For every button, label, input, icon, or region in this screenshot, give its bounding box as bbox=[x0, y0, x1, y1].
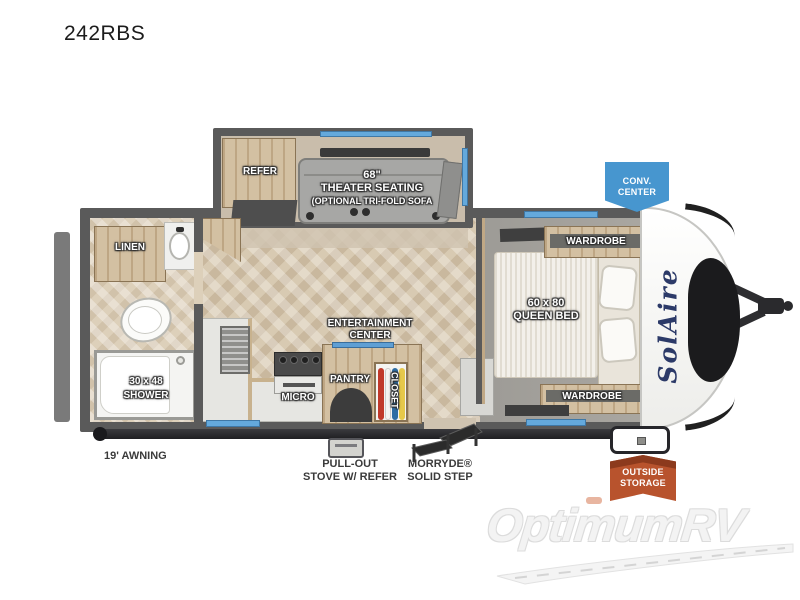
bedroom-bench bbox=[505, 405, 569, 416]
shower-drain-icon bbox=[176, 356, 185, 365]
stove-label-2: STOVE W/ REFER bbox=[300, 471, 400, 484]
stove-cooktop-icon bbox=[274, 352, 322, 376]
watermark-logo: OptimumRV bbox=[484, 498, 746, 552]
cupholder-icon bbox=[350, 208, 358, 216]
theater-shelf bbox=[320, 148, 430, 157]
window-strip bbox=[320, 131, 432, 137]
rear-bumper bbox=[54, 232, 70, 422]
sofa-foot-icon bbox=[306, 212, 314, 220]
shower-size-label: 30 x 48 bbox=[106, 376, 186, 388]
clothes-icon bbox=[399, 368, 405, 420]
outside-storage-badge: OUTSIDE STORAGE bbox=[610, 455, 676, 501]
faucet-icon bbox=[176, 227, 184, 232]
tv-icon bbox=[332, 342, 394, 348]
page-title: 242RBS bbox=[64, 22, 145, 46]
bedroom-wall bbox=[476, 218, 485, 404]
cupholder-icon bbox=[362, 208, 370, 216]
bathroom-wall bbox=[194, 218, 203, 422]
burner-icon bbox=[279, 356, 287, 364]
micro-label: MICRO bbox=[272, 392, 324, 404]
stove-grate bbox=[335, 444, 357, 447]
window-strip bbox=[524, 211, 598, 218]
burner-icon bbox=[312, 356, 320, 364]
step-label-1: MORRYDE® bbox=[392, 458, 488, 471]
entertainment-label-2: CENTER bbox=[310, 330, 430, 342]
toilet-seat-icon bbox=[128, 306, 162, 334]
bathroom-sink-icon bbox=[169, 232, 190, 260]
burner-icon bbox=[301, 356, 309, 364]
window-strip bbox=[526, 419, 586, 426]
front-window bbox=[688, 258, 740, 382]
awning-end-cap bbox=[93, 427, 107, 441]
pullout-stove-icon bbox=[328, 438, 364, 458]
cap-trim bbox=[683, 203, 738, 236]
pillow-icon bbox=[598, 264, 638, 312]
window-strip bbox=[206, 420, 260, 427]
closet-label: CLOSET bbox=[389, 364, 400, 416]
hatch-latch-icon bbox=[637, 437, 646, 445]
clothes-icon bbox=[378, 368, 384, 420]
shower-label: SHOWER bbox=[106, 390, 186, 402]
entertainment-label-1: ENTERTAINMENT bbox=[310, 318, 430, 330]
linen-cabinet bbox=[94, 226, 166, 282]
storage-label-1: OUTSIDE bbox=[610, 467, 676, 478]
theater-size-label: 68" bbox=[292, 169, 452, 182]
refer-label: REFER bbox=[230, 166, 290, 178]
floorplan-canvas: 242RBS REFER 68" THEATER SEATING (OPTION… bbox=[0, 0, 800, 600]
awning-label: 19' AWNING bbox=[104, 450, 244, 463]
window-strip bbox=[462, 148, 468, 206]
linen-label: LINEN bbox=[100, 242, 160, 254]
bed-size-label: 60 x 80 bbox=[494, 297, 598, 310]
cap-trim bbox=[683, 397, 738, 430]
conv-label-1: CONV. bbox=[605, 176, 669, 187]
wardrobe-top-label: WARDROBE bbox=[556, 236, 636, 248]
storage-label-2: STORAGE bbox=[610, 478, 676, 489]
burner-icon bbox=[290, 356, 298, 364]
bathroom-door-opening bbox=[194, 252, 203, 304]
brand-logo-text: SolAire bbox=[654, 267, 683, 383]
conv-label-2: CENTER bbox=[605, 187, 669, 198]
bed-label: QUEEN BED bbox=[494, 310, 598, 323]
brand-logo: SolAire bbox=[648, 240, 688, 410]
theater-option-label: (OPTIONAL TRI-FOLD SOFA bbox=[292, 196, 452, 207]
step-label-2: SOLID STEP bbox=[392, 471, 488, 484]
conv-center-badge: CONV. CENTER bbox=[605, 162, 669, 214]
wardrobe-bottom-label: WARDROBE bbox=[552, 391, 632, 403]
oven-handle bbox=[283, 383, 315, 387]
kitchen-sink-icon bbox=[220, 326, 250, 374]
outside-storage-hatch bbox=[610, 426, 670, 454]
theater-seating-label: THEATER SEATING bbox=[292, 182, 452, 195]
pantry-label: PANTRY bbox=[322, 374, 378, 386]
stove-label-1: PULL-OUT bbox=[300, 458, 400, 471]
pillow-icon bbox=[598, 317, 638, 364]
